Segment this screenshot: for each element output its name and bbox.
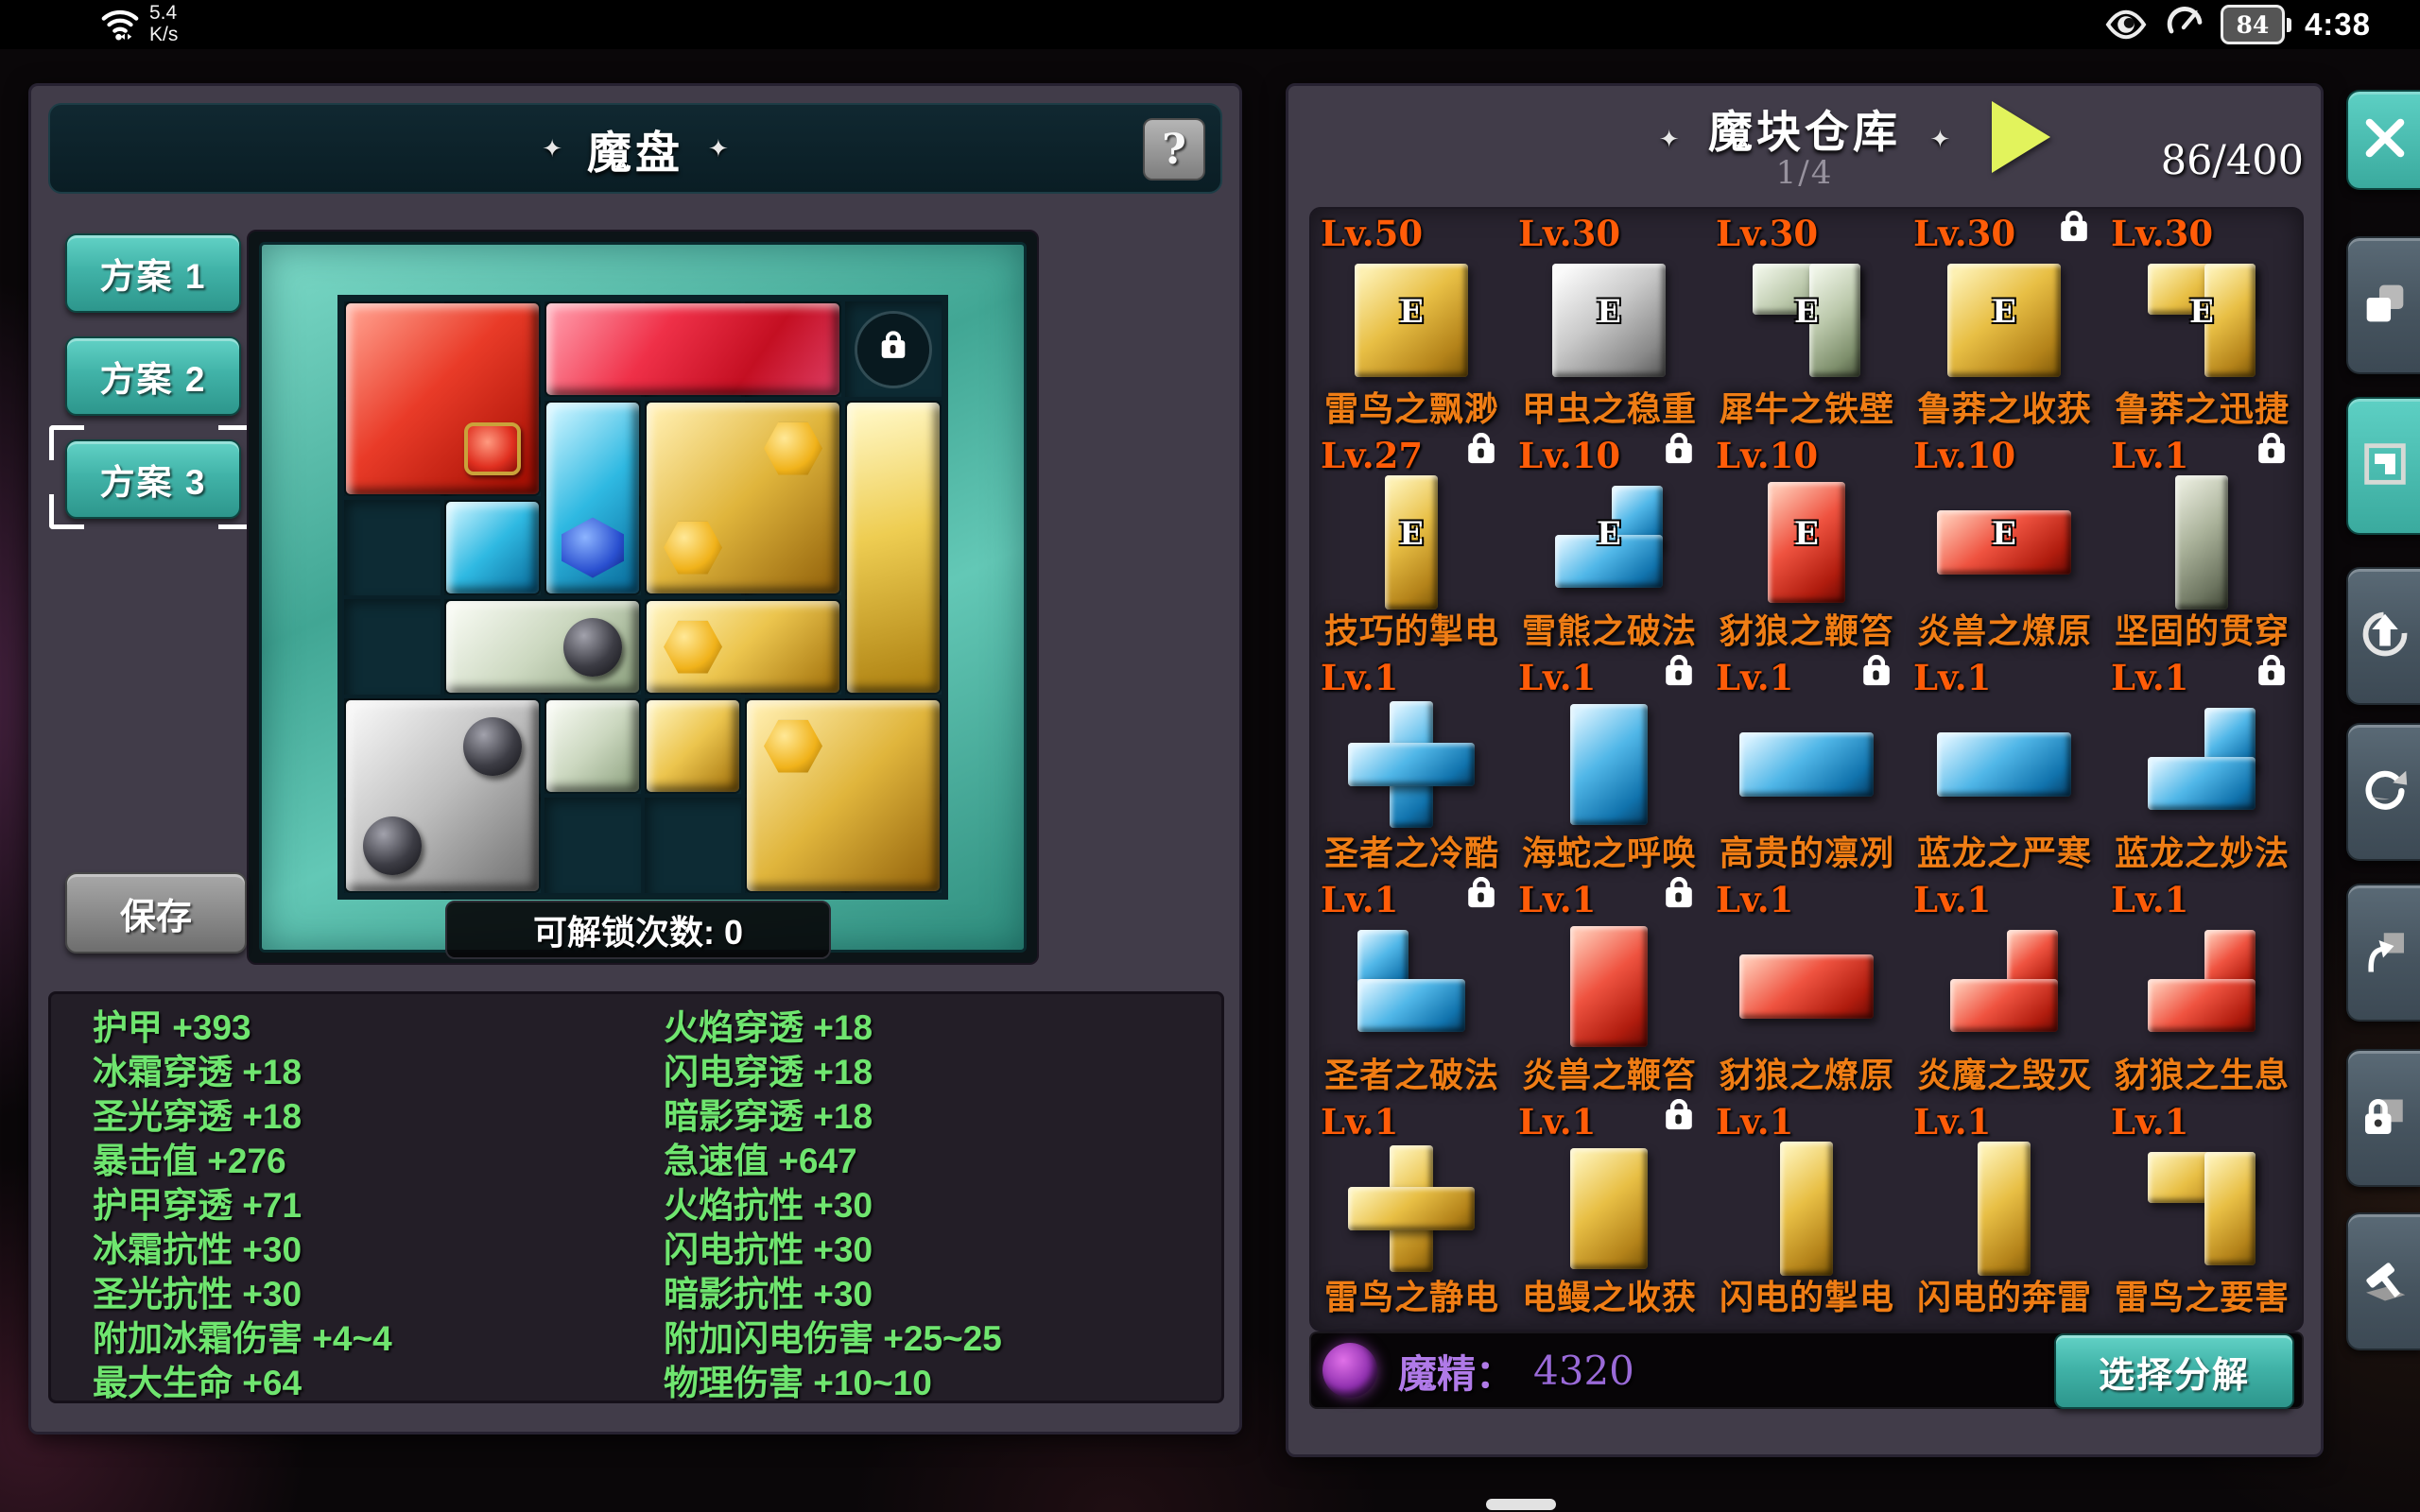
block-part: [1978, 1142, 2031, 1276]
arrow-up-circle-icon: [2357, 606, 2413, 667]
lock-icon: [1666, 1109, 1692, 1129]
warehouse-item[interactable]: Lv.10E炎兽之燎原: [1906, 435, 2103, 657]
stat-item-left: 最大生命 +64: [93, 1361, 392, 1403]
stat-item-left: 圣光抗性 +30: [93, 1272, 392, 1316]
warehouse-grid: Lv.50E雷鸟之飘渺Lv.30E甲虫之稳重Lv.30E犀牛之铁壁Lv.30E鲁…: [1313, 213, 2300, 1323]
save-button[interactable]: 保存: [65, 872, 247, 954]
board-cell: [543, 796, 643, 895]
warehouse-item[interactable]: Lv.1豺狼之燎原: [1708, 879, 1906, 1101]
lock-icon: [1863, 665, 1890, 685]
block-shape-bv: [1933, 1137, 2075, 1280]
warehouse-item[interactable]: Lv.1蓝龙之严寒: [1906, 657, 2103, 879]
block-shape-sq: E: [1933, 249, 2075, 392]
block-part: [1570, 704, 1648, 825]
block-shape-sq: E: [1538, 249, 1680, 392]
lock-icon: [2061, 221, 2087, 241]
board-piece-cyan-elbow[interactable]: [446, 502, 539, 593]
item-name: 圣者之冷酷: [1313, 826, 1511, 875]
warehouse-item[interactable]: Lv.50E雷鸟之飘渺: [1313, 213, 1511, 435]
warehouse-item[interactable]: Lv.1高贵的凛冽: [1708, 657, 1906, 879]
rune-badge: E: [1992, 293, 2016, 331]
warehouse-item[interactable]: Lv.30E鲁莽之收获: [1906, 213, 2103, 435]
lock-icon: [1666, 887, 1692, 907]
lock-icon: [2258, 665, 2285, 685]
move-out-button[interactable]: [2346, 884, 2420, 1022]
item-name: 电鳗之收获: [1511, 1270, 1708, 1319]
copy-block-button[interactable]: [2346, 236, 2420, 374]
stat-item-right: 火焰抗性 +30: [664, 1183, 1002, 1228]
magic-disk-title: 魔盘: [587, 116, 683, 181]
block-part: [1937, 732, 2071, 797]
selection-corner: [49, 494, 84, 529]
item-name: 豺狼之燎原: [1708, 1048, 1906, 1097]
battery-tip: [2287, 18, 2291, 32]
block-shape-l: [1340, 915, 1482, 1058]
warehouse-item[interactable]: Lv.1雷鸟之静电: [1313, 1101, 1511, 1323]
board-piece-gold-elbow[interactable]: [647, 700, 739, 792]
lock-icon: [1666, 443, 1692, 463]
upgrade-button[interactable]: [2346, 567, 2420, 705]
warehouse-item[interactable]: Lv.1雷鸟之要害: [2103, 1101, 2301, 1323]
lock-icon: [1468, 887, 1495, 907]
rune-badge: E: [1794, 515, 1819, 553]
mana-value: 4320: [1533, 1348, 1634, 1394]
block-shape-rh: [1736, 693, 1877, 836]
stat-item-right: 暗影抗性 +30: [664, 1272, 1002, 1316]
decompose-label: 选择分解: [2099, 1346, 2250, 1398]
scheme-button-label: 方案 3: [65, 439, 241, 519]
unlock-counter-text: 可解锁次数: 0: [533, 905, 743, 954]
warehouse-title: 魔块仓库: [1708, 107, 1901, 157]
block-shape-rv: [1538, 1137, 1680, 1280]
lock-square-icon: [2357, 1088, 2413, 1149]
block-select-icon: [2358, 437, 2412, 496]
lock-button[interactable]: [2346, 1049, 2420, 1187]
board-piece-gold-bar[interactable]: [847, 403, 940, 693]
block-shape-bv: [1736, 1137, 1877, 1280]
block-part: [1570, 926, 1648, 1047]
block-part: [2175, 475, 2228, 610]
block-shape-j: [2131, 915, 2273, 1058]
item-name: 闪电的掣电: [1708, 1270, 1906, 1319]
rune-badge: E: [1399, 515, 1424, 553]
scheme-button-label: 方案 1: [65, 233, 241, 313]
magic-disk-header: ✦ 魔盘 ✦ ?: [48, 103, 1222, 194]
block-shape-rv: [1538, 693, 1680, 836]
block-shape-j: [2131, 693, 2273, 836]
warehouse-item[interactable]: Lv.1豺狼之生息: [2103, 879, 2301, 1101]
block-part: [1780, 1142, 1833, 1276]
warehouse-item[interactable]: Lv.1蓝龙之妙法: [2103, 657, 2301, 879]
block-shape-rh: [1933, 693, 2075, 836]
selection-corner: [49, 425, 84, 460]
battery-level: 84: [2237, 11, 2270, 39]
item-name: 甲虫之稳重: [1511, 382, 1708, 431]
wifi-icon: [98, 2, 142, 45]
black-gem-icon: [463, 717, 522, 776]
stat-item-right: 闪电穿透 +18: [664, 1050, 1002, 1094]
warehouse-item[interactable]: Lv.1闪电的掣电: [1708, 1101, 1906, 1323]
copy-icon: [2358, 276, 2412, 335]
close-button[interactable]: [2346, 90, 2420, 190]
board-piece-white-elbow[interactable]: [546, 700, 639, 792]
deco-diamond-icon: ✦: [542, 134, 562, 163]
item-name: 犀牛之铁壁: [1708, 382, 1906, 431]
status-indicators: 84 4:38: [2103, 2, 2371, 47]
warehouse-item[interactable]: Lv.10E豺狼之鞭笞: [1708, 435, 1906, 657]
item-name: 高贵的凛冽: [1708, 826, 1906, 875]
rune-badge: E: [1794, 293, 1819, 331]
puzzle-board: [342, 300, 943, 895]
arrow-up-square-icon: [2357, 922, 2413, 984]
rotate-button[interactable]: [2346, 723, 2420, 861]
stat-item-right: 急速值 +647: [664, 1139, 1002, 1183]
warehouse-item[interactable]: Lv.1圣者之冷酷: [1313, 657, 1511, 879]
block-part: [1570, 1148, 1648, 1269]
block-part: [2148, 757, 2256, 810]
black-gem-icon: [563, 618, 622, 677]
item-name: 雷鸟之静电: [1313, 1270, 1511, 1319]
item-name: 蓝龙之严寒: [1906, 826, 2103, 875]
puzzle-board-border: [259, 242, 1027, 953]
block-part: [2204, 1152, 2256, 1265]
network-speed-unit: K/s: [149, 24, 178, 45]
block-shape-g: E: [1736, 249, 1877, 392]
puzzle-board-frame: [247, 230, 1039, 965]
board-cell: [643, 796, 743, 895]
rune-badge: E: [2189, 293, 2214, 331]
item-name: 雷鸟之要害: [2103, 1270, 2301, 1319]
block-shape-g: E: [2131, 249, 2273, 392]
item-name: 蓝龙之妙法: [2103, 826, 2301, 875]
block-part: [1348, 743, 1475, 786]
warehouse-item[interactable]: Lv.10E雪熊之破法: [1511, 435, 1708, 657]
warehouse-item[interactable]: Lv.30E犀牛之铁壁: [1708, 213, 1906, 435]
item-name: 炎兽之燎原: [1906, 604, 2103, 653]
warehouse-item[interactable]: Lv.1电鳗之收获: [1511, 1101, 1708, 1323]
rune-badge: E: [1597, 293, 1621, 331]
board-cell: [342, 498, 442, 597]
block-shape-j: [1933, 915, 2075, 1058]
network-status: 5.4 K/s: [98, 2, 178, 45]
lock-icon: [2258, 443, 2285, 463]
rotate-icon: [2358, 763, 2412, 822]
warehouse-item[interactable]: Lv.30E甲虫之稳重: [1511, 213, 1708, 435]
lock-emblem: [857, 314, 929, 386]
stat-item-left: 圣光穿透 +18: [93, 1094, 392, 1139]
hammer-icon: [2357, 1251, 2413, 1313]
item-name: 豺狼之鞭笞: [1708, 604, 1906, 653]
item-name: 鲁莽之迅捷: [2103, 382, 2301, 431]
magic-disk-panel: ✦ 魔盘 ✦ ? 方案 1方案 2方案 3 保存 可解锁次数: 0 护甲 +39…: [28, 83, 1242, 1435]
stat-item-left: 冰霜穿透 +18: [93, 1050, 392, 1094]
deco-diamond-icon: ✦: [1929, 125, 1950, 153]
warehouse-item[interactable]: Lv.1炎兽之鞭笞: [1511, 879, 1708, 1101]
save-label: 保存: [120, 887, 192, 939]
item-name: 圣者之破法: [1313, 1048, 1511, 1097]
board-cell: [342, 597, 442, 696]
block-shape-cross: [1340, 1137, 1482, 1280]
network-speed: 5.4 K/s: [149, 2, 178, 45]
stat-item-right: 物理伤害 +10~10: [664, 1361, 1002, 1403]
stats-panel: 护甲 +393冰霜穿透 +18圣光穿透 +18暴击值 +276护甲穿透 +71冰…: [48, 991, 1224, 1403]
stat-item-left: 冰霜抗性 +30: [93, 1228, 392, 1272]
page-root: 5.4 K/s 84 4:38 ✦ 魔盘: [0, 0, 2420, 1512]
scheme-button-2[interactable]: 方案 2: [65, 336, 237, 412]
stat-item-right: 闪电抗性 +30: [664, 1228, 1002, 1272]
scheme-buttons: 方案 1方案 2方案 3: [65, 233, 237, 542]
block-shape-rv: E: [1736, 471, 1877, 614]
locked-cell: [843, 300, 943, 399]
mana-gem-icon: [1322, 1343, 1377, 1398]
warehouse-grid-container: Lv.50E雷鸟之飘渺Lv.30E甲虫之稳重Lv.30E犀牛之铁壁Lv.30E鲁…: [1309, 207, 2304, 1332]
item-name: 雪熊之破法: [1511, 604, 1708, 653]
item-name: 坚固的贯穿: [2103, 604, 2301, 653]
warehouse-item[interactable]: Lv.1圣者之破法: [1313, 879, 1511, 1101]
item-name: 炎魔之毁灭: [1906, 1048, 2103, 1097]
eye-icon: [2103, 2, 2149, 47]
block-shape-rh: E: [1933, 471, 2075, 614]
stat-item-left: 暴击值 +276: [93, 1139, 392, 1183]
block-part: [1950, 979, 2058, 1032]
block-shape-rv: [1538, 915, 1680, 1058]
stats-column-left: 护甲 +393冰霜穿透 +18圣光穿透 +18暴击值 +276护甲穿透 +71冰…: [93, 1005, 392, 1403]
rune-badge: E: [1597, 515, 1621, 553]
stat-item-left: 护甲穿透 +71: [93, 1183, 392, 1228]
unlock-counter: 可解锁次数: 0: [445, 901, 831, 959]
warehouse-item[interactable]: Lv.1海蛇之呼唤: [1511, 657, 1708, 879]
block-part: [1739, 954, 1874, 1019]
warehouse-count: 86/400: [2161, 137, 2304, 184]
stat-item-right: 火焰穿透 +18: [664, 1005, 1002, 1050]
scheme-button-label: 方案 2: [65, 336, 241, 416]
stat-item-right: 暗影穿透 +18: [664, 1094, 1002, 1139]
mana-label: 魔精：: [1398, 1342, 1514, 1399]
warehouse-item[interactable]: Lv.1坚固的贯穿: [2103, 435, 2301, 657]
item-name: 闪电的奔雷: [1906, 1270, 2103, 1319]
deco-diamond-icon: ✦: [708, 134, 729, 163]
lock-icon: [1666, 665, 1692, 685]
item-name: 豺狼之生息: [2103, 1048, 2301, 1097]
board-piece-red-bar[interactable]: [546, 303, 839, 395]
stat-item-right: 附加闪电伤害 +25~25: [664, 1316, 1002, 1361]
block-part: [1739, 732, 1874, 797]
block-shape-rh: [1736, 915, 1877, 1058]
data-saver-icon: [2162, 2, 2207, 47]
next-page-arrow-icon[interactable]: [1992, 101, 2050, 173]
lock-icon: [1468, 443, 1495, 463]
warehouse-item[interactable]: Lv.1炎魔之毁灭: [1906, 879, 2103, 1101]
help-button[interactable]: ?: [1143, 118, 1205, 180]
rune-badge: E: [1399, 293, 1424, 331]
item-name: 技巧的掣电: [1313, 604, 1511, 653]
block-warehouse-panel: ✦ 魔块仓库 ✦ 1/4 86/400 Lv.50E雷鸟之飘渺Lv.30E甲虫之…: [1286, 83, 2324, 1457]
item-name: 炎兽之鞭笞: [1511, 1048, 1708, 1097]
help-label: ?: [1162, 126, 1186, 174]
stat-item-left: 护甲 +393: [93, 1005, 392, 1050]
close-icon: [2359, 112, 2411, 169]
stat-item-left: 附加冰霜伤害 +4~4: [93, 1316, 392, 1361]
red-gem-icon: [464, 422, 521, 475]
rune-badge: E: [1992, 515, 2016, 553]
item-name: 雷鸟之飘渺: [1313, 382, 1511, 431]
warehouse-item[interactable]: Lv.1闪电的奔雷: [1906, 1101, 2103, 1323]
black-gem-icon: [363, 816, 422, 875]
battery-icon: 84: [2221, 5, 2291, 44]
scheme-button-3[interactable]: 方案 3: [65, 439, 237, 515]
mana-bar: 魔精： 4320 选择分解: [1309, 1332, 2304, 1409]
decompose-hammer-button[interactable]: [2346, 1212, 2420, 1350]
decompose-select-button[interactable]: 选择分解: [2054, 1333, 2294, 1409]
block-shape-bv: [2131, 471, 2273, 614]
block-shape-g: [2131, 1137, 2273, 1280]
warehouse-item[interactable]: Lv.27E技巧的掣电: [1313, 435, 1511, 657]
block-part: [1348, 1187, 1475, 1230]
scheme-button-1[interactable]: 方案 1: [65, 233, 237, 309]
item-name: 海蛇之呼唤: [1511, 826, 1708, 875]
home-indicator: [1486, 1499, 1556, 1510]
network-speed-value: 5.4: [149, 2, 178, 24]
stats-column-right: 火焰穿透 +18闪电穿透 +18暗影穿透 +18急速值 +647火焰抗性 +30…: [664, 1005, 1002, 1403]
lock-icon: [882, 340, 906, 358]
block-part: [2148, 979, 2256, 1032]
deco-diamond-icon: ✦: [1659, 125, 1680, 153]
select-block-button[interactable]: [2346, 397, 2420, 535]
block-shape-sq: E: [1340, 249, 1482, 392]
block-shape-bv: E: [1340, 471, 1482, 614]
block-part: [1357, 979, 1465, 1032]
status-bar: 5.4 K/s 84 4:38: [0, 0, 2420, 49]
block-shape-cross: [1340, 693, 1482, 836]
item-name: 鲁莽之收获: [1906, 382, 2103, 431]
clock: 4:38: [2305, 7, 2371, 43]
warehouse-item[interactable]: Lv.30E鲁莽之迅捷: [2103, 213, 2301, 435]
block-shape-j: E: [1538, 471, 1680, 614]
